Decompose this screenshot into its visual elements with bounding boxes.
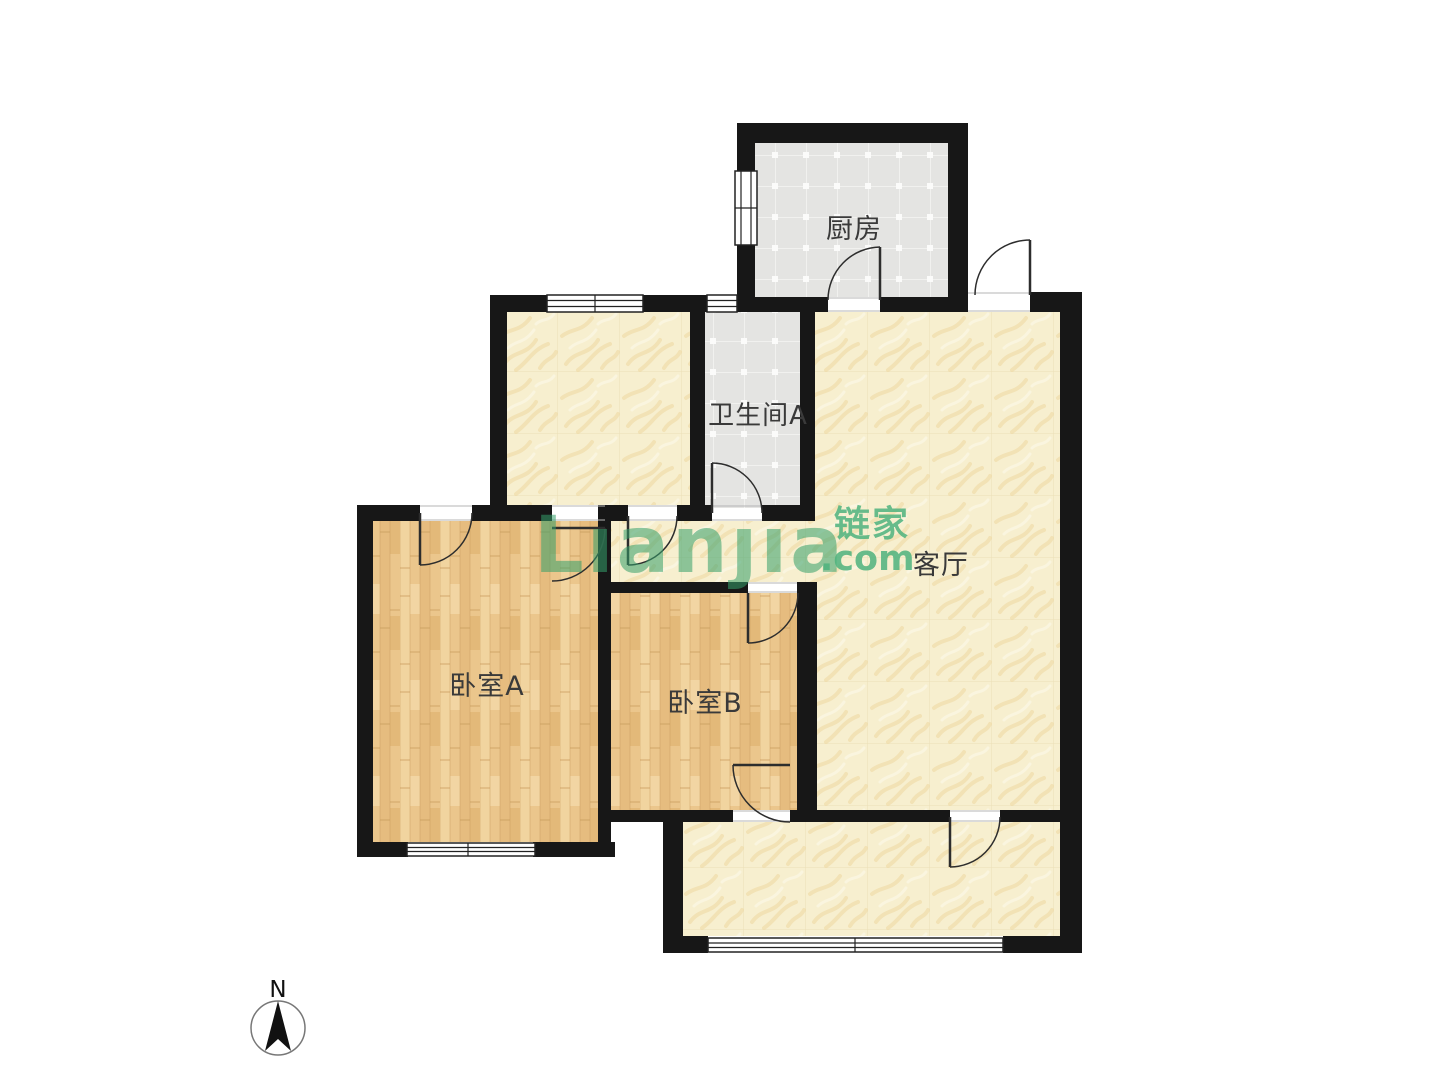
watermark: Lıanȷıa 链家 .com (534, 501, 915, 591)
wall-segment (1060, 292, 1082, 953)
compass: N (251, 977, 305, 1055)
wall-segment (663, 936, 708, 953)
wall-segment (357, 505, 373, 857)
wall-segment (737, 297, 828, 312)
wall-segment (357, 842, 408, 857)
window-bathroom-top (707, 295, 737, 312)
wall-segment (790, 810, 817, 822)
window-balcony-bottom (708, 938, 1003, 952)
wall-segment (880, 297, 968, 312)
wall-segment (533, 842, 615, 857)
window-kitchen-left (735, 171, 757, 245)
watermark-logo-tld: .com (820, 539, 915, 579)
wall-segment (737, 244, 755, 297)
compass-north-label: N (269, 977, 286, 1003)
label-kitchen: 厨房 (826, 214, 882, 245)
wall-segment (737, 143, 755, 172)
wall-segment (490, 295, 507, 520)
wall-segment (690, 312, 705, 508)
door-entry (975, 240, 1030, 295)
wall-segment (948, 123, 968, 312)
wall-segment (1003, 936, 1082, 953)
watermark-logo-latin: Lıanȷıa (534, 501, 846, 591)
floorplan-canvas: 厨房 卫生间A 客厅 卧室A 卧室B Lıanȷıa 链家 .com N (0, 0, 1440, 1080)
floor-dining (507, 312, 690, 505)
wall-segment (643, 295, 707, 312)
wall-segment (1000, 810, 1060, 822)
label-bedroom-b: 卧室B (667, 688, 743, 719)
window-dining-top (547, 295, 643, 312)
label-bedroom-a: 卧室A (449, 671, 524, 702)
label-living-room: 客厅 (913, 550, 969, 581)
wall-segment (737, 123, 965, 143)
wall-segment (797, 582, 817, 822)
window-bedroom-a-bottom (407, 843, 535, 856)
label-bathroom-a: 卫生间A (708, 401, 808, 431)
floor-balcony (683, 822, 1060, 936)
wall-segment (663, 810, 683, 953)
floorplan-page: 厨房 卫生间A 客厅 卧室A 卧室B Lıanȷıa 链家 .com N (0, 0, 1440, 1080)
wall-segment (817, 810, 950, 822)
